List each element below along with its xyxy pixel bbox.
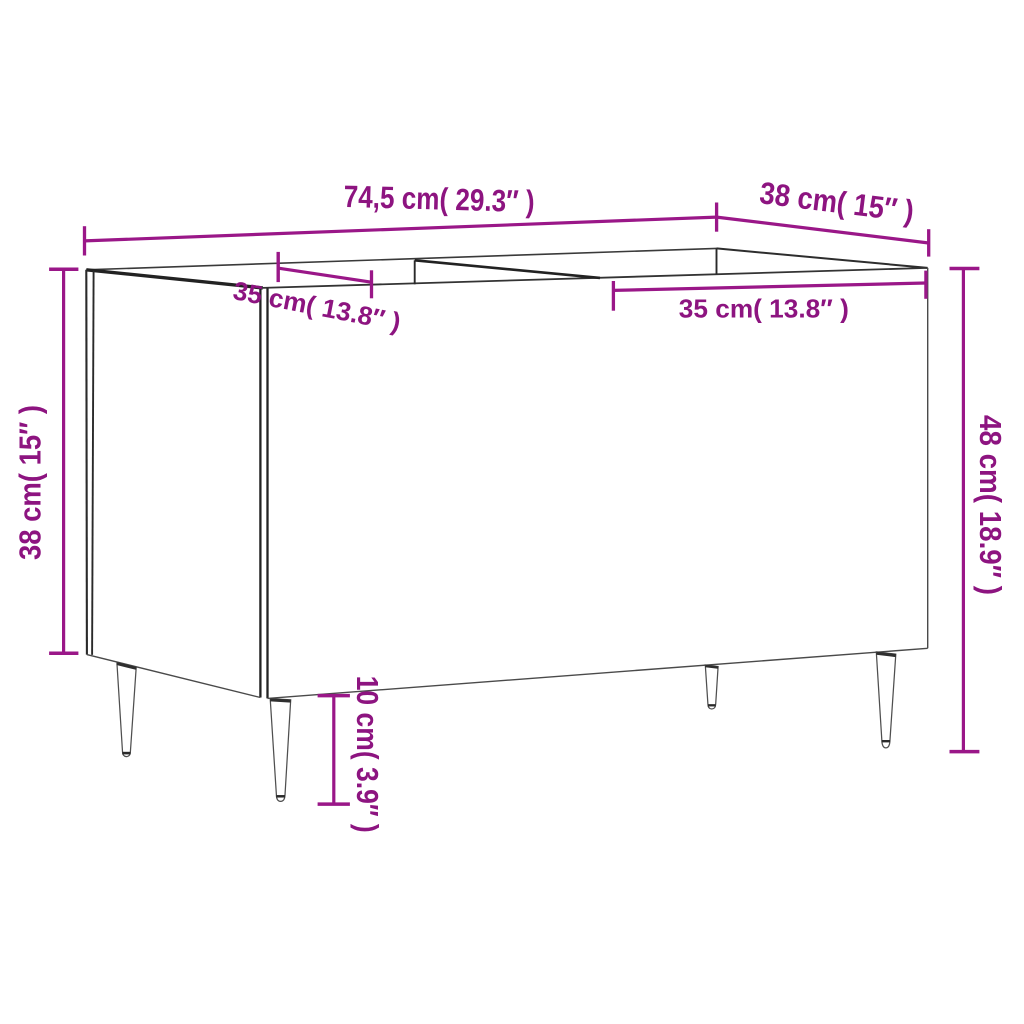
svg-text:48 cm( 18.9″ ): 48 cm( 18.9″ ) [973, 415, 1008, 595]
svg-text:74,5 cm( 29.3″ ): 74,5 cm( 29.3″ ) [343, 179, 535, 219]
svg-text:38 cm( 15″ ): 38 cm( 15″ ) [13, 405, 48, 560]
svg-text:10 cm( 3.9″ ): 10 cm( 3.9″ ) [350, 676, 385, 833]
svg-text:35 cm( 13.8″ ): 35 cm( 13.8″ ) [679, 294, 849, 324]
